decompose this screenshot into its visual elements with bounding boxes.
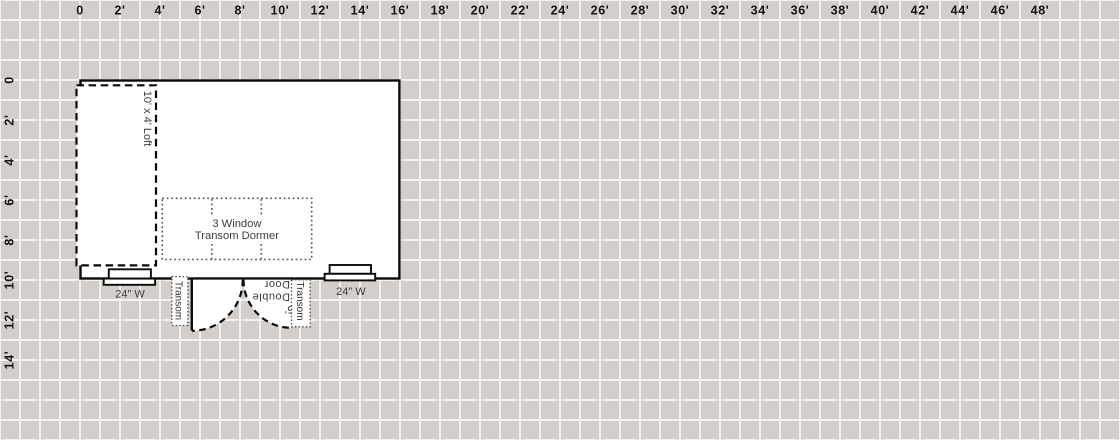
svg-text:26': 26': [591, 4, 610, 18]
svg-text:48': 48': [1031, 4, 1050, 18]
svg-text:4': 4': [154, 4, 165, 18]
svg-text:Door: Door: [264, 278, 290, 290]
svg-text:42': 42': [911, 4, 930, 18]
svg-text:28': 28': [631, 4, 650, 18]
svg-text:44': 44': [951, 4, 970, 18]
svg-text:12': 12': [3, 311, 17, 330]
svg-text:14': 14': [351, 4, 370, 18]
svg-text:12': 12': [311, 4, 330, 18]
svg-text:Double: Double: [252, 291, 290, 303]
svg-text:6': 6': [3, 194, 17, 205]
svg-text:4': 4': [3, 154, 17, 165]
svg-text:2': 2': [3, 114, 17, 125]
svg-text:16': 16': [391, 4, 410, 18]
svg-text:8': 8': [234, 4, 245, 18]
svg-text:0: 0: [76, 4, 84, 18]
svg-text:3 Window: 3 Window: [212, 218, 262, 230]
svg-text:14': 14': [3, 351, 17, 370]
svg-text:Transom: Transom: [294, 281, 305, 320]
svg-text:38': 38': [831, 4, 850, 18]
svg-text:10': 10': [3, 271, 17, 290]
svg-text:Transom Dormer: Transom Dormer: [195, 230, 279, 242]
svg-text:Transom: Transom: [173, 281, 184, 320]
svg-text:0: 0: [3, 76, 17, 84]
svg-text:46': 46': [991, 4, 1010, 18]
svg-text:20': 20': [471, 4, 490, 18]
svg-text:32': 32': [711, 4, 730, 18]
svg-text:8': 8': [3, 234, 17, 245]
svg-text:18': 18': [431, 4, 450, 18]
svg-text:10' x 4' Loft: 10' x 4' Loft: [141, 91, 153, 147]
svg-text:24': 24': [551, 4, 570, 18]
svg-text:6': 6': [194, 4, 205, 18]
svg-text:24" W: 24" W: [115, 288, 145, 300]
svg-text:30': 30': [671, 4, 690, 18]
svg-text:36': 36': [791, 4, 810, 18]
svg-text:40': 40': [871, 4, 890, 18]
svg-text:34': 34': [751, 4, 770, 18]
svg-text:10': 10': [271, 4, 290, 18]
svg-text:22': 22': [511, 4, 530, 18]
svg-text:2': 2': [114, 4, 125, 18]
svg-text:24" W: 24" W: [336, 286, 366, 298]
